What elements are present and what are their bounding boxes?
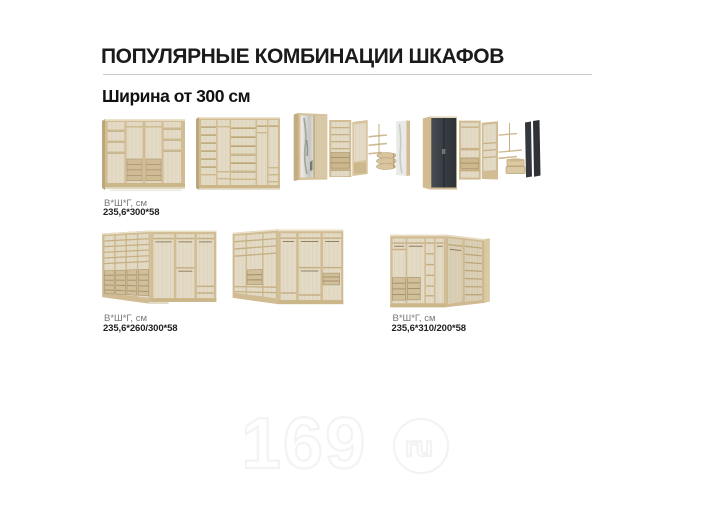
svg-text:ru: ru xyxy=(405,431,433,462)
svg-text:169: 169 xyxy=(245,406,367,478)
